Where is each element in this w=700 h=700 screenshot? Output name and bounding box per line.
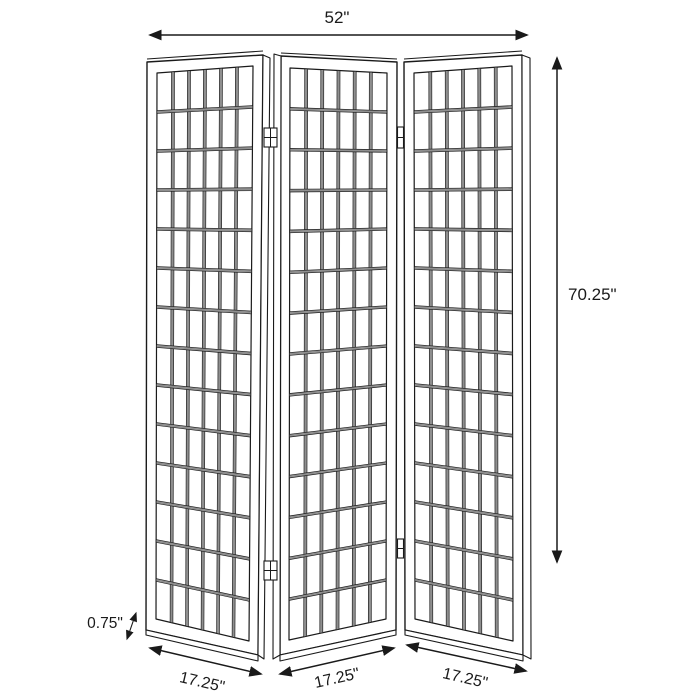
height-dimension-label: 70.25" <box>568 285 617 304</box>
hinge-left-bottom <box>264 561 277 580</box>
thickness-dimension-label: 0.75" <box>87 615 123 632</box>
panel1-width-label: 17.25" <box>178 669 226 696</box>
grid-mullion <box>157 188 252 192</box>
panel2-width-label: 17.25" <box>313 665 361 691</box>
hinge-right-bottom <box>398 539 404 558</box>
width-dimension-label: 52" <box>325 8 350 27</box>
grid-mullion <box>414 188 512 192</box>
grid-mullion <box>290 189 387 192</box>
panel-right-grid <box>414 66 513 641</box>
hinge-right-top <box>398 127 404 148</box>
panel-left <box>146 51 270 661</box>
panel3-width-label: 17.25" <box>441 665 489 692</box>
dimension-diagram: 52" 70.25" 0.75" 17.25" 17.25" 17.25" <box>0 0 700 700</box>
folding-screen-drawing: 52" 70.25" 0.75" 17.25" 17.25" 17.25" <box>0 0 700 700</box>
panel-middle-grid <box>289 68 387 640</box>
panel-left-grid <box>156 66 253 641</box>
thickness-arrow <box>127 613 136 639</box>
hinge-left-top <box>264 128 277 147</box>
panel-right-side-edge <box>522 55 531 659</box>
panel-right <box>404 51 531 661</box>
panel-middle <box>273 53 397 661</box>
